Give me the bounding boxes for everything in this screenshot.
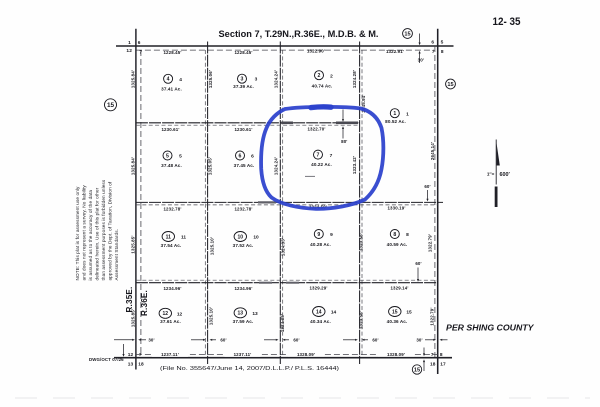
svg-text:1324.35': 1324.35' — [280, 314, 285, 332]
svg-text:1322.70': 1322.70' — [307, 127, 325, 132]
svg-text:40.28 Ac.: 40.28 Ac. — [310, 242, 331, 247]
svg-text:37.39 Ac.: 37.39 Ac. — [233, 84, 254, 89]
svg-text:1322.79': 1322.79' — [430, 307, 435, 325]
svg-text:9: 9 — [317, 232, 320, 238]
svg-text:15: 15 — [404, 32, 410, 38]
svg-text:1323.56': 1323.56' — [359, 311, 364, 329]
svg-text:R.36E.: R.36E. — [140, 290, 149, 316]
svg-text:7: 7 — [139, 50, 142, 56]
svg-text:60': 60' — [415, 261, 421, 266]
svg-text:13: 13 — [238, 311, 244, 317]
svg-text:2: 2 — [330, 73, 333, 79]
svg-text:1329.14': 1329.14' — [390, 286, 408, 291]
svg-text:12- 35: 12- 35 — [493, 16, 522, 28]
svg-text:than assessment purposes is fo: than assessment purposes is forbidden un… — [101, 179, 106, 280]
svg-text:1325.84': 1325.84' — [130, 70, 135, 88]
svg-text:Section 7, T.29N.,R.36E., M.D.: Section 7, T.29N.,R.36E., M.D.B. & M. — [219, 29, 379, 39]
svg-text:7: 7 — [317, 153, 320, 159]
svg-text:12: 12 — [128, 352, 134, 358]
svg-text:15: 15 — [392, 309, 398, 315]
svg-text:7: 7 — [330, 153, 333, 159]
svg-text:40.74 Ac.: 40.74 Ac. — [312, 83, 333, 88]
svg-text:1328.09': 1328.09' — [387, 352, 405, 357]
svg-text:1234.96': 1234.96' — [163, 286, 181, 291]
svg-text:2: 2 — [318, 73, 321, 79]
svg-text:18: 18 — [138, 362, 144, 368]
svg-text:11: 11 — [181, 235, 186, 241]
svg-text:15: 15 — [107, 102, 115, 109]
svg-text:delineated herein. Use of thi: delineated herein. Use of this plat for … — [94, 187, 99, 280]
svg-text:1234.96': 1234.96' — [234, 286, 252, 291]
svg-text:37.61 Ac.: 37.61 Ac. — [160, 319, 181, 324]
svg-text:40.59 Ac.: 40.59 Ac. — [387, 242, 408, 247]
svg-text:37.52 Ac.: 37.52 Ac. — [233, 243, 254, 248]
svg-text:15: 15 — [414, 368, 420, 374]
svg-text:3: 3 — [255, 77, 258, 83]
svg-text:1: 1 — [393, 111, 396, 117]
svg-text:1329.29': 1329.29' — [309, 286, 327, 291]
svg-text:30': 30' — [416, 338, 422, 343]
svg-text:9: 9 — [330, 232, 333, 238]
svg-text:1228.45': 1228.45' — [163, 50, 181, 55]
svg-text:1322.91': 1322.91' — [386, 49, 404, 54]
svg-text:1230.61': 1230.61' — [161, 127, 179, 132]
svg-text:1322.90': 1322.90' — [307, 49, 325, 54]
svg-text:(File No. 355647/June 14, 2007: (File No. 355647/June 14, 2007/D.L.L.P./… — [160, 366, 339, 372]
svg-text:7: 7 — [139, 352, 142, 358]
svg-text:1323.42': 1323.42' — [352, 156, 357, 174]
svg-text:7: 7 — [431, 352, 434, 358]
svg-text:60': 60' — [220, 338, 226, 343]
svg-text:13: 13 — [128, 362, 134, 368]
svg-text:1330.19': 1330.19' — [387, 206, 405, 211]
svg-text:NOTE: This plat is for assess: NOTE: This plat is for assessment use on… — [75, 186, 80, 281]
svg-text:37.59 Ac.: 37.59 Ac. — [233, 319, 254, 324]
svg-text:13: 13 — [252, 311, 258, 317]
svg-text:80.52 Ac.: 80.52 Ac. — [385, 119, 406, 124]
svg-text:and does not represent a surve: and does not represent a survey. No liab… — [81, 185, 86, 281]
svg-text:1325.84': 1325.84' — [130, 157, 135, 175]
svg-text:1324.24': 1324.24' — [274, 157, 279, 175]
svg-text:1325.10': 1325.10' — [210, 237, 215, 255]
svg-text:4: 4 — [167, 77, 170, 83]
svg-text:60': 60' — [424, 184, 430, 189]
svg-text:60': 60' — [293, 338, 299, 343]
svg-text:1″=: 1″= — [487, 172, 495, 177]
svg-text:15: 15 — [406, 310, 412, 316]
svg-text:R.35E.: R.35E. — [125, 287, 134, 313]
svg-text:8: 8 — [393, 232, 396, 238]
svg-text:1232.78': 1232.78' — [163, 206, 181, 211]
svg-text:1325.05': 1325.05' — [208, 157, 213, 175]
svg-text:40.34 Ac.: 40.34 Ac. — [310, 319, 331, 324]
svg-text:15: 15 — [447, 82, 453, 88]
svg-text:1237.11': 1237.11' — [234, 352, 252, 357]
svg-text:approved by the Dept. of Taxat: approved by the Dept. of Taxation, Divis… — [107, 181, 112, 280]
svg-text:17: 17 — [440, 362, 446, 368]
svg-text:1232.78': 1232.78' — [234, 206, 252, 211]
svg-text:7: 7 — [432, 49, 435, 55]
svg-text:6: 6 — [251, 154, 254, 160]
svg-text:10: 10 — [238, 234, 244, 240]
svg-text:1322.79': 1322.79' — [427, 234, 432, 252]
svg-text:40.36 Ac.: 40.36 Ac. — [387, 319, 408, 324]
svg-text:1323.56': 1323.56' — [359, 233, 364, 251]
svg-text:1: 1 — [406, 111, 409, 117]
svg-text:12: 12 — [126, 48, 132, 54]
svg-text:8: 8 — [440, 352, 443, 358]
svg-text:80': 80' — [341, 139, 347, 144]
svg-text:14: 14 — [316, 309, 322, 315]
svg-text:30': 30' — [418, 58, 424, 63]
svg-text:1228.45': 1228.45' — [234, 50, 252, 55]
svg-text:Assessment Standards.: Assessment Standards. — [114, 229, 119, 281]
svg-text:30': 30' — [148, 338, 154, 343]
svg-text:is assumed as to the accuracy: is assumed as to the accuracy of the dat… — [88, 190, 93, 281]
svg-text:4: 4 — [179, 77, 182, 83]
svg-text:6: 6 — [239, 153, 242, 159]
svg-text:2645.14': 2645.14' — [430, 142, 435, 160]
svg-text:1325.06': 1325.06' — [208, 70, 213, 88]
svg-text:1328.09': 1328.09' — [297, 352, 315, 357]
svg-text:DWG/OCT 07/26: DWG/OCT 07/26 — [89, 357, 124, 362]
svg-text:11: 11 — [166, 234, 172, 240]
svg-text:1325.85': 1325.85' — [130, 235, 135, 253]
svg-text:14: 14 — [331, 310, 337, 316]
svg-text:6: 6 — [138, 40, 141, 46]
svg-text:37.41 Ac.: 37.41 Ac. — [161, 87, 182, 92]
svg-text:1324.28': 1324.28' — [352, 70, 357, 88]
svg-text:PER SHING COUNTY: PER SHING COUNTY — [446, 324, 534, 333]
svg-text:1324.24': 1324.24' — [274, 70, 279, 88]
svg-text:12: 12 — [177, 312, 183, 318]
svg-text:6: 6 — [431, 40, 434, 46]
svg-text:60': 60' — [372, 338, 378, 343]
svg-text:5: 5 — [166, 153, 169, 159]
svg-text:5: 5 — [179, 154, 182, 160]
svg-text:18: 18 — [430, 362, 436, 368]
svg-text:1325.10': 1325.10' — [209, 307, 214, 325]
svg-text:8: 8 — [441, 49, 444, 55]
svg-text:37.54 Ac.: 37.54 Ac. — [161, 243, 182, 248]
svg-text:600′: 600′ — [500, 172, 511, 178]
svg-text:3: 3 — [241, 77, 244, 83]
svg-text:1324.35': 1324.35' — [281, 238, 286, 256]
svg-text:37.48 Ac.: 37.48 Ac. — [161, 163, 182, 168]
svg-text:1230.61': 1230.61' — [234, 127, 252, 132]
svg-text:1: 1 — [128, 40, 131, 46]
svg-text:10: 10 — [253, 235, 259, 241]
svg-text:37.45 Ac.: 37.45 Ac. — [234, 163, 255, 168]
svg-text:12: 12 — [163, 311, 169, 317]
svg-text:1237.11': 1237.11' — [161, 352, 179, 357]
svg-text:40.22 Ac.: 40.22 Ac. — [311, 162, 332, 167]
svg-text:8: 8 — [406, 232, 409, 238]
svg-text:5: 5 — [441, 40, 444, 46]
